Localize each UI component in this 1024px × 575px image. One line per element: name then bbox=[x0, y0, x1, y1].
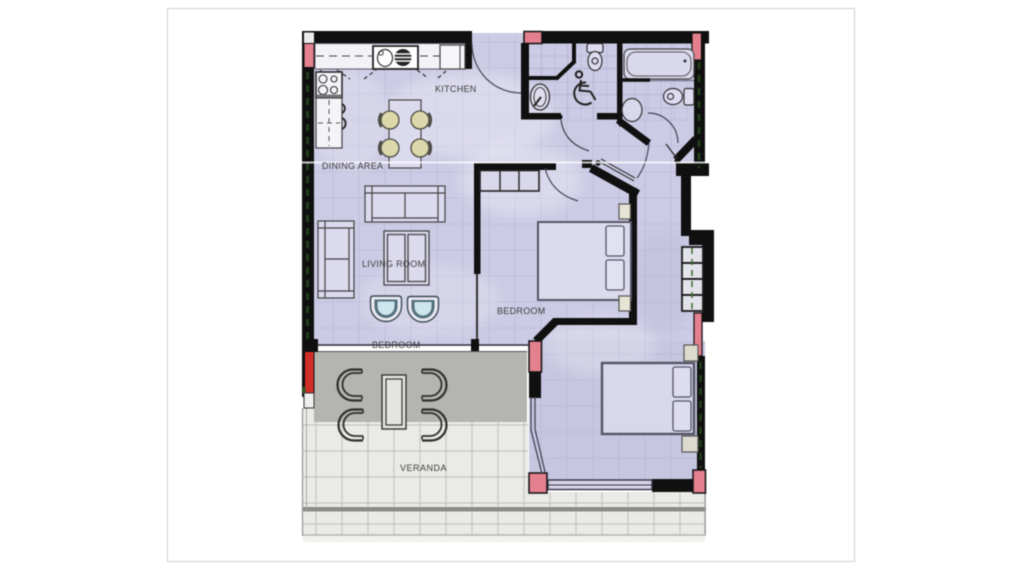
svg-text:LIVING ROOM: LIVING ROOM bbox=[362, 259, 425, 269]
svg-text:BEDROOM: BEDROOM bbox=[372, 340, 421, 350]
svg-text:VERANDA: VERANDA bbox=[400, 463, 447, 473]
svg-text:DINING AREA: DINING AREA bbox=[322, 161, 383, 171]
svg-text:BEDROOM: BEDROOM bbox=[497, 306, 546, 316]
svg-text:KITCHEN: KITCHEN bbox=[435, 84, 477, 94]
